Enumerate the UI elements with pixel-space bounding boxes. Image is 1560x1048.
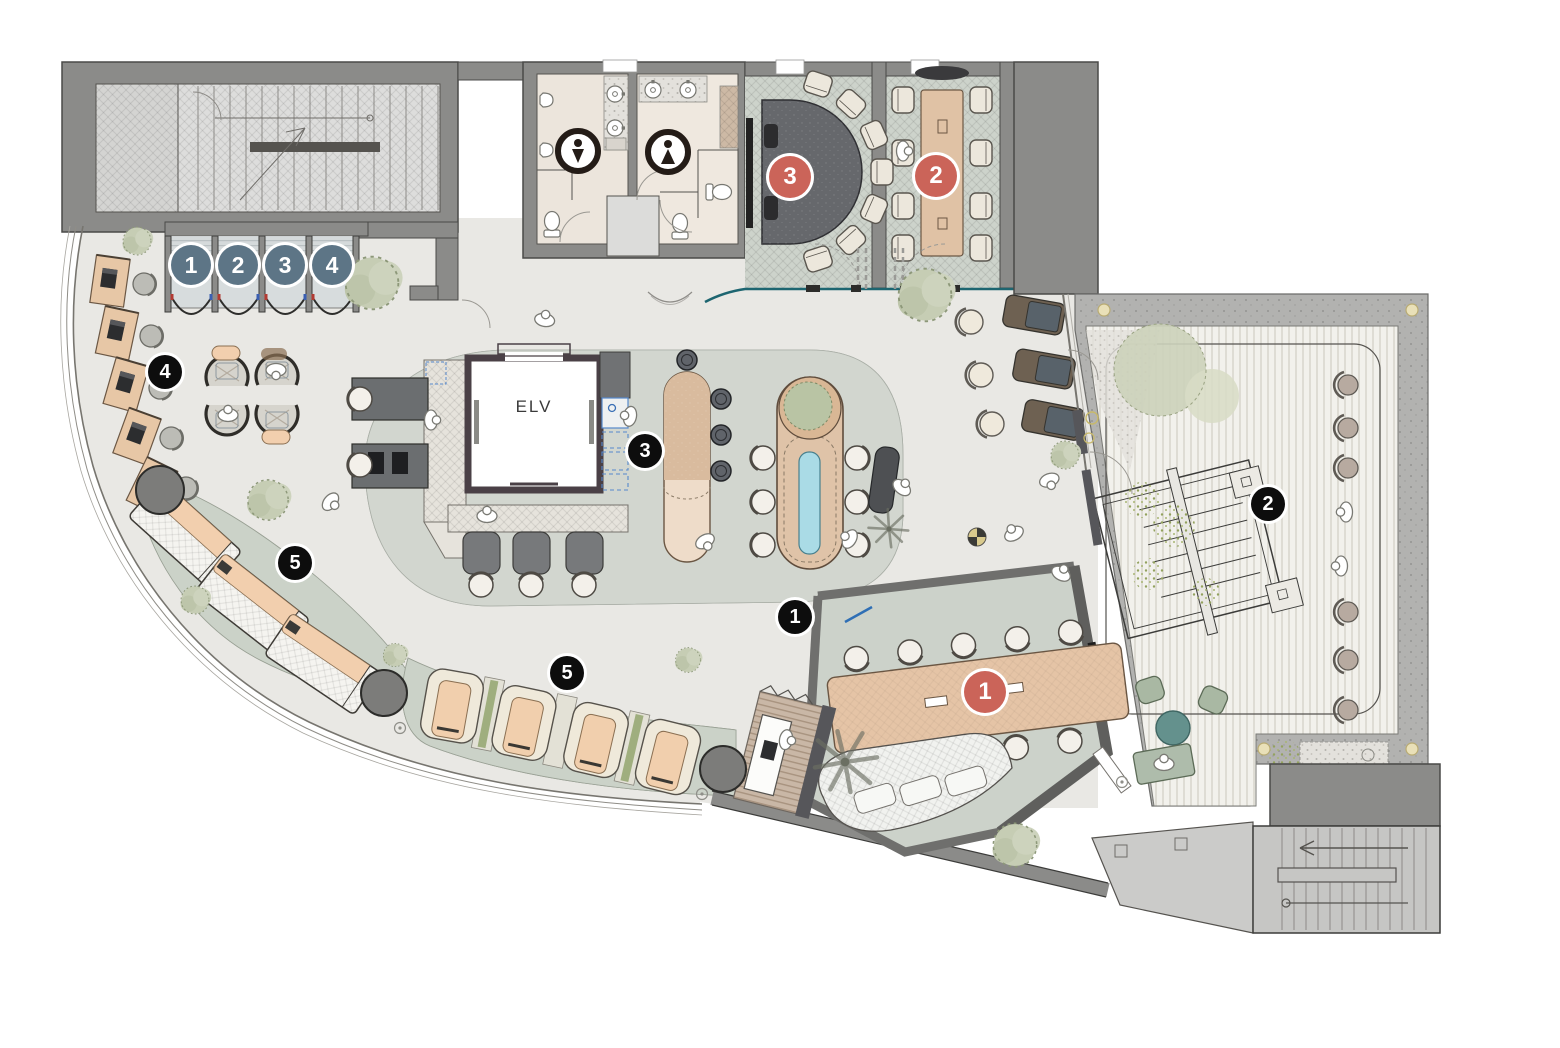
meeting-rooms-top bbox=[705, 60, 1016, 302]
exterior-stair bbox=[1092, 764, 1440, 933]
tv-screen-room3 bbox=[746, 118, 753, 228]
tv-screen-room2 bbox=[915, 66, 969, 80]
stair-core bbox=[62, 62, 458, 232]
terrace bbox=[1075, 294, 1428, 806]
floor-plan-drawing bbox=[0, 0, 1560, 1048]
wall-top-right bbox=[1014, 62, 1098, 294]
meeting-room-1 bbox=[806, 566, 1133, 852]
phone-booths bbox=[165, 222, 368, 314]
floor-plan: ELV 1234321435512 bbox=[0, 0, 1560, 1048]
